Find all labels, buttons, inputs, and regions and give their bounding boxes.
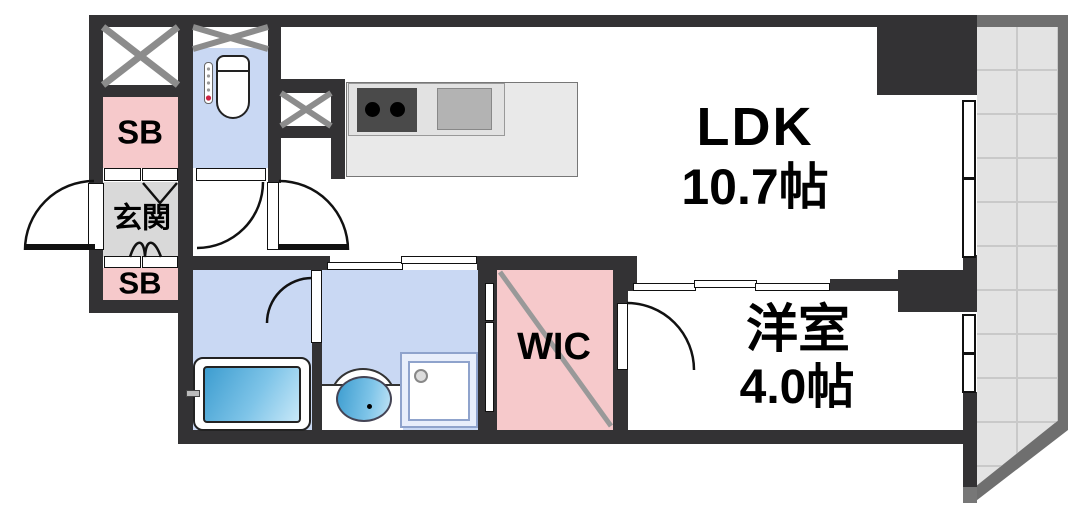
toilet-control-panel [204, 62, 213, 104]
room-label-entrance: 玄関 [113, 205, 171, 234]
bathtub-water [203, 366, 301, 423]
toilet-door-panel [196, 168, 266, 181]
wall-segment [103, 85, 178, 97]
ldk-window [962, 100, 976, 179]
shoe-box-upper-door [104, 168, 141, 181]
shoe-box-upper-door [142, 168, 178, 181]
wall-segment [89, 27, 103, 183]
hall-door-opening [267, 182, 279, 250]
room-label-shoe-box-upper: SB [117, 116, 163, 149]
wall-segment [963, 392, 977, 490]
wall-segment [898, 270, 977, 312]
ldk-window [962, 178, 976, 258]
wall-segment [312, 340, 322, 430]
wall-end-cap [963, 487, 977, 503]
toilet-seat-line [217, 70, 249, 72]
entry-door-opening [88, 183, 104, 250]
wall-segment [268, 27, 281, 183]
pipe-shaft-x-icon [103, 27, 178, 85]
western-room-window [962, 353, 976, 393]
western-room-door-swing-arc [627, 303, 694, 370]
ldk-door-swing-arc [279, 181, 348, 250]
western-room-door-opening [617, 303, 628, 370]
wall-segment [830, 279, 900, 291]
wic-sliding-door [485, 322, 494, 412]
washroom-sliding-door [401, 256, 477, 264]
room-size-western: 4.0帖 [740, 364, 855, 412]
entry-door-swing-arc [25, 181, 94, 250]
room-label-ldk: LDK [697, 100, 814, 154]
wall-segment [89, 15, 877, 27]
entry-door-leaf [25, 244, 95, 250]
washroom-sliding-door [327, 262, 403, 270]
wall-segment [92, 300, 190, 313]
toilet-door-swing-arc [197, 182, 263, 248]
wic-sliding-door [485, 283, 494, 321]
stove-burner-icon [365, 102, 380, 117]
ldk-door-leaf [279, 244, 348, 250]
wall-segment [178, 15, 193, 443]
bathroom-door-panel [311, 270, 322, 343]
wall-segment [178, 430, 977, 444]
stove-burner-icon [390, 102, 405, 117]
toilet-bowl-icon [216, 55, 250, 119]
wall-segment [178, 256, 330, 270]
western-room-window [962, 314, 976, 354]
wall-segment [877, 15, 977, 95]
wall-segment [281, 126, 331, 138]
floor-plan: LDK 10.7帖 洋室 4.0帖 WIC 玄関 SB SB [0, 0, 1079, 523]
room-size-ldk: 10.7帖 [681, 162, 828, 212]
basin-bowl-icon [336, 376, 392, 422]
washer-drain-icon [414, 369, 428, 383]
room-label-wic: WIC [517, 328, 591, 366]
bathtub-faucet-icon [186, 390, 200, 397]
room-label-western: 洋室 [746, 304, 850, 356]
ldk-western-sliding-door [755, 283, 830, 291]
kitchen-sink [437, 88, 492, 130]
ldk-western-sliding-door [633, 283, 696, 291]
room-label-shoe-box-lower: SB [118, 268, 161, 299]
ldk-western-sliding-door [694, 280, 757, 288]
balcony-floor [977, 27, 1058, 490]
basin-drain-dot [367, 404, 372, 409]
wall-segment [331, 79, 345, 179]
